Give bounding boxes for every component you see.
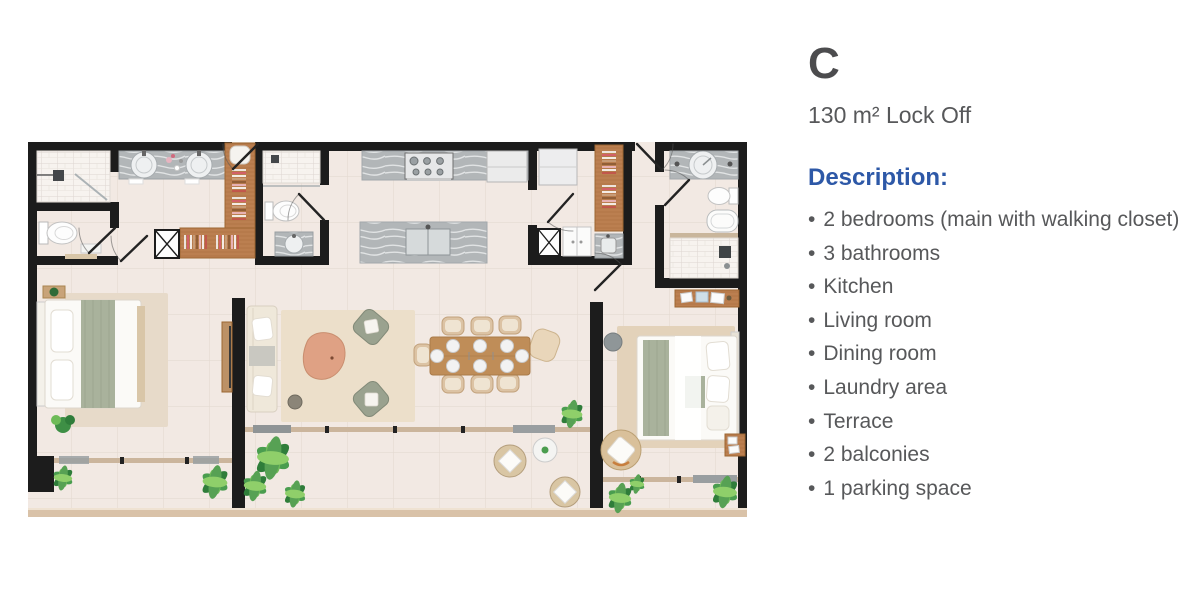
- description-item: Living room: [808, 304, 1190, 338]
- vanity-double-sink: [119, 150, 225, 184]
- description-item: Kitchen: [808, 270, 1190, 304]
- description-item: 3 bathrooms: [808, 237, 1190, 271]
- unit-title: C: [808, 42, 1190, 86]
- description-list: 2 bedrooms (main with walking closet) 3 …: [808, 203, 1190, 505]
- description-item: 2 bedrooms (main with walking closet): [808, 203, 1190, 237]
- page: { "unit": { "title": "C", "area": "130 m…: [0, 0, 1200, 600]
- unit-area: 130 m² Lock Off: [808, 102, 1190, 128]
- unit-info-panel: C 130 m² Lock Off Description: 2 bedroom…: [808, 42, 1190, 505]
- description-item: Terrace: [808, 405, 1190, 439]
- main-shower-room: [37, 151, 110, 202]
- description-item: Dining room: [808, 337, 1190, 371]
- description-item: 2 balconies: [808, 438, 1190, 472]
- description-item: 1 parking space: [808, 472, 1190, 506]
- floor-plan-image: [25, 130, 750, 517]
- description-heading: Description:: [808, 165, 1190, 191]
- description-item: Laundry area: [808, 371, 1190, 405]
- desk-area: [675, 290, 739, 307]
